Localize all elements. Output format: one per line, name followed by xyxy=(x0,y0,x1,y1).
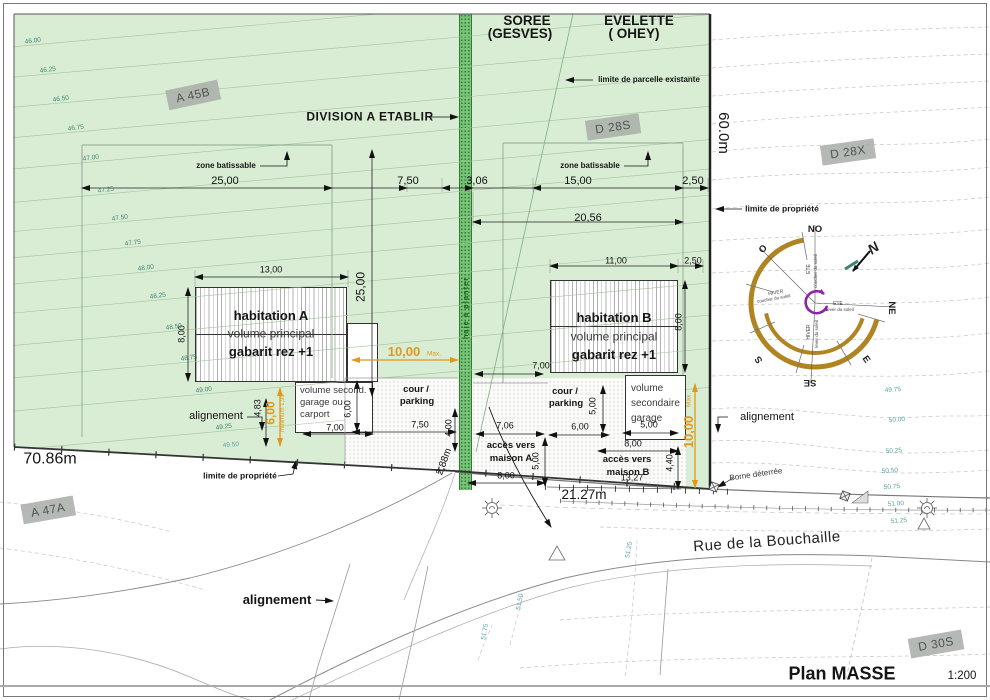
dimension-label: Max. xyxy=(687,393,694,407)
cour-a-line2: parking xyxy=(400,397,434,407)
contour-elevation-label: 51.50 xyxy=(516,593,526,610)
property-limit-note-south: limite de propriété xyxy=(203,472,277,481)
locality-right-sub: ( OHEY) xyxy=(608,27,659,41)
annex-a-line3: carport xyxy=(300,410,330,420)
dimension-label: 13,00 xyxy=(260,265,283,274)
dimension-label: 6,00 xyxy=(343,400,352,418)
annex-a-line2: garage ou xyxy=(300,398,343,408)
dimension-label: 4,83 xyxy=(253,399,262,417)
dimension-label: 13,27 xyxy=(621,473,644,482)
buildable-zone-note-a: zone batissable xyxy=(196,162,256,170)
page-scale: 1:200 xyxy=(948,670,977,682)
dimension-label: 6,00 xyxy=(265,401,278,424)
dimension-label: 5,00 xyxy=(531,452,540,470)
acces-a-line1: accès vers xyxy=(487,441,536,451)
contour-elevation-label: 48.00 xyxy=(137,264,154,273)
annex-b-line1: volume xyxy=(631,384,663,395)
cour-a-line1: cour / xyxy=(403,385,429,395)
habitation-b-gabarit: gabarit rez +1 xyxy=(572,348,656,362)
page-title: Plan MASSE xyxy=(788,665,895,684)
contour-elevation-label: 47.00 xyxy=(82,154,99,163)
dimension-label: 7,50 xyxy=(411,420,429,429)
cour-b-line1: cour / xyxy=(552,387,578,397)
habitation-a-gabarit: gabarit rez +1 xyxy=(229,345,313,359)
contour-elevation-label: 51.75 xyxy=(481,623,491,640)
dimension-label: 4,00 xyxy=(444,419,453,437)
contour-elevation-label: 49.25 xyxy=(215,423,232,432)
dimension-label: Max. xyxy=(427,352,441,359)
buildable-zone-note-b: zone batissable xyxy=(560,162,620,170)
parcel-label-a47a: A 47A xyxy=(20,496,75,525)
contour-elevation-label: 46.25 xyxy=(39,66,56,75)
dimension-label: 7,06 xyxy=(496,421,514,430)
contour-elevation-label: 50.00 xyxy=(889,417,906,425)
contour-elevation-label: 51.25 xyxy=(625,541,635,558)
dimension-label: 2,88m xyxy=(435,447,454,477)
dimension-label: 2,50 xyxy=(682,176,703,188)
contour-elevation-label: 49.75 xyxy=(885,387,902,395)
habitation-b-name: habitation B xyxy=(576,311,651,325)
dimension-label: 7,00 xyxy=(532,361,550,370)
dimension-label: 25,00 xyxy=(355,272,368,302)
dimension-label: 4,40 xyxy=(665,454,674,472)
dimension-label: 8,00 xyxy=(674,313,683,331)
dimension-label: 8,00 xyxy=(497,471,515,480)
site-plan: NO O NE E SE S N ETE coucher du soleil H… xyxy=(0,0,990,700)
dimension-label: 10,00 xyxy=(388,345,421,359)
annex-b-line2: secondaire xyxy=(631,399,680,410)
contour-elevation-label: 46.00 xyxy=(24,37,41,46)
dimension-label: 8,00 xyxy=(624,439,642,448)
dimension-label: 25,00 xyxy=(211,176,239,188)
division-note: DIVISION A ETABLIR xyxy=(306,111,433,124)
labels-layer: SOREE (GESVES) EVELETTE ( OHEY) DIVISION… xyxy=(0,0,990,700)
acces-a-line2: maison A xyxy=(490,454,532,464)
habitation-a-volume: volume principal xyxy=(228,328,315,341)
parcel-label-d30s: D 30S xyxy=(908,629,965,658)
alignment-note-bottom: alignement xyxy=(243,593,312,607)
hedge-note: haie à planter xyxy=(462,277,470,339)
boundary-length-west: 70.86m xyxy=(23,452,76,469)
dimension-label: 5,00 xyxy=(588,397,597,415)
contour-elevation-label: 49.50 xyxy=(223,442,240,450)
dimension-label: 2,50 xyxy=(684,256,702,265)
habitation-b-volume: volume principal xyxy=(571,331,658,344)
dimension-label: 11,00 xyxy=(605,256,627,265)
acces-b-line1: accès vers xyxy=(603,455,652,465)
contour-elevation-label: 51.00 xyxy=(888,501,905,509)
dimension-label: 3,06 xyxy=(466,176,487,188)
dimension-label: 7,00 xyxy=(326,423,344,432)
dimension-label: 15,00 xyxy=(564,176,592,188)
dimension-label: 7,50 xyxy=(397,176,418,188)
habitation-a-name: habitation A xyxy=(234,309,309,323)
dimension-label: 20,56 xyxy=(574,213,602,225)
contour-elevation-label: 50.75 xyxy=(884,484,901,492)
contour-elevation-label: 51.25 xyxy=(891,518,908,526)
locality-left-sub: (GESVES) xyxy=(488,27,553,41)
contour-elevation-label: 48.75 xyxy=(180,354,197,363)
boundary-length-front: 21.27m xyxy=(561,488,606,502)
contour-elevation-label: 47.25 xyxy=(97,186,114,195)
contour-elevation-label: 50.25 xyxy=(886,448,903,456)
parcel-label-d28x: D 28X xyxy=(820,138,876,165)
contour-elevation-label: 47.75 xyxy=(124,239,141,248)
alignment-note-left: alignement xyxy=(189,411,243,423)
contour-elevation-label: 46.75 xyxy=(67,124,84,133)
contour-elevation-label: 49.00 xyxy=(195,386,212,395)
dimension-label: 6,00 xyxy=(571,422,589,431)
dimension-label: 10,00 xyxy=(682,416,696,449)
dimension-label: 5,00 xyxy=(640,420,658,429)
borne-note: Borne déterrée xyxy=(729,467,783,483)
contour-elevation-label: 47.50 xyxy=(111,214,128,223)
parcel-label-a45b: A 45B xyxy=(165,80,221,110)
dimension-label: minimum 1,90 xyxy=(280,394,286,432)
contour-elevation-label: 48.25 xyxy=(149,292,166,301)
street-name: Rue de la Bouchaille xyxy=(693,529,841,555)
existing-parcel-limit-note: limite de parcelle existante xyxy=(598,76,700,84)
boundary-length-east: 60.0m xyxy=(715,112,731,154)
alignment-note-right: alignement xyxy=(740,412,794,424)
annex-a-line1: volume second. xyxy=(300,386,367,396)
contour-elevation-label: 46.50 xyxy=(52,95,69,104)
contour-elevation-label: 50.50 xyxy=(882,468,899,476)
parcel-label-d28s: D 28S xyxy=(585,113,641,140)
property-limit-note-east: limite de propriété xyxy=(745,205,819,214)
cour-b-line2: parking xyxy=(549,399,583,409)
